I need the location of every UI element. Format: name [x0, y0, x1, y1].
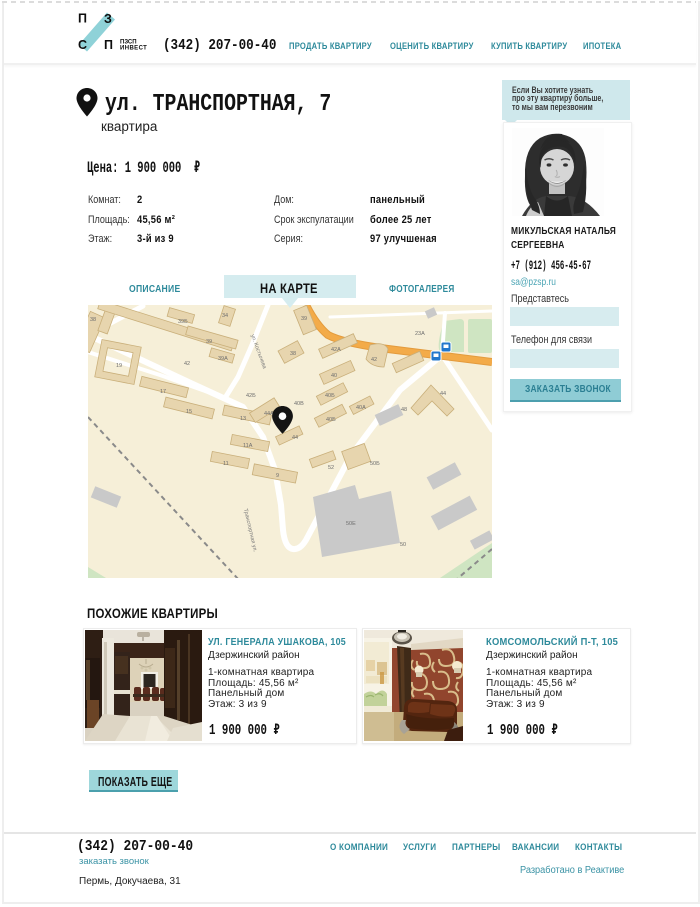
- svg-text:С: С: [78, 38, 87, 52]
- svg-text:39: 39: [206, 339, 212, 345]
- svg-text:40В: 40В: [294, 401, 304, 407]
- svg-text:50: 50: [400, 542, 406, 548]
- svg-text:39: 39: [301, 316, 307, 322]
- svg-text:44: 44: [292, 435, 298, 441]
- svg-text:40Б: 40Б: [325, 393, 335, 399]
- svg-text:50Е: 50Е: [346, 521, 356, 527]
- svg-text:44: 44: [440, 391, 446, 397]
- svg-text:11: 11: [223, 461, 229, 467]
- svg-text:П: П: [104, 38, 113, 52]
- svg-text:42: 42: [371, 357, 377, 363]
- svg-text:19: 19: [116, 363, 122, 369]
- svg-text:23А: 23А: [415, 331, 425, 337]
- svg-text:38: 38: [290, 351, 296, 357]
- svg-text:17: 17: [160, 389, 166, 395]
- svg-text:52: 52: [328, 465, 334, 471]
- svg-text:15: 15: [186, 409, 192, 415]
- svg-text:40: 40: [331, 373, 337, 379]
- svg-text:34: 34: [222, 313, 228, 319]
- svg-text:42Б: 42Б: [246, 393, 256, 399]
- svg-text:50Б: 50Б: [370, 461, 380, 467]
- svg-text:48: 48: [401, 407, 407, 413]
- svg-text:ИНВЕСТ: ИНВЕСТ: [120, 46, 147, 52]
- svg-text:11А: 11А: [243, 443, 253, 449]
- svg-text:40А: 40А: [356, 405, 366, 411]
- svg-text:13: 13: [240, 416, 246, 422]
- svg-text:42: 42: [184, 361, 190, 367]
- svg-text:38: 38: [90, 317, 96, 323]
- svg-text:З: З: [104, 12, 112, 26]
- svg-text:39А: 39А: [218, 356, 228, 362]
- svg-text:42А: 42А: [331, 347, 341, 353]
- svg-text:9: 9: [276, 473, 279, 479]
- svg-text:40Б: 40Б: [326, 417, 336, 423]
- svg-text:39Б: 39Б: [178, 319, 188, 325]
- svg-text:П: П: [78, 12, 87, 26]
